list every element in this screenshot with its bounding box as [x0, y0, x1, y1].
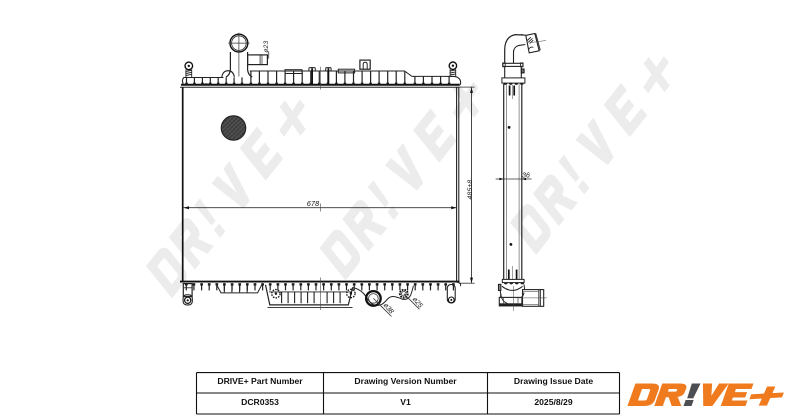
svg-text:2025/8/29: 2025/8/29	[534, 397, 572, 407]
svg-text:485±8: 485±8	[467, 180, 474, 200]
svg-text:Drawing Version Number: Drawing Version Number	[354, 376, 457, 386]
svg-text:36: 36	[522, 172, 530, 179]
svg-text:V1: V1	[400, 397, 411, 407]
svg-text:DCR0353: DCR0353	[241, 397, 279, 407]
svg-text:678: 678	[307, 199, 320, 208]
svg-text:Drawing Issue Date: Drawing Issue Date	[514, 376, 593, 386]
svg-text:ø23: ø23	[263, 41, 270, 53]
svg-text:DRIVE+ Part Number: DRIVE+ Part Number	[217, 376, 303, 386]
